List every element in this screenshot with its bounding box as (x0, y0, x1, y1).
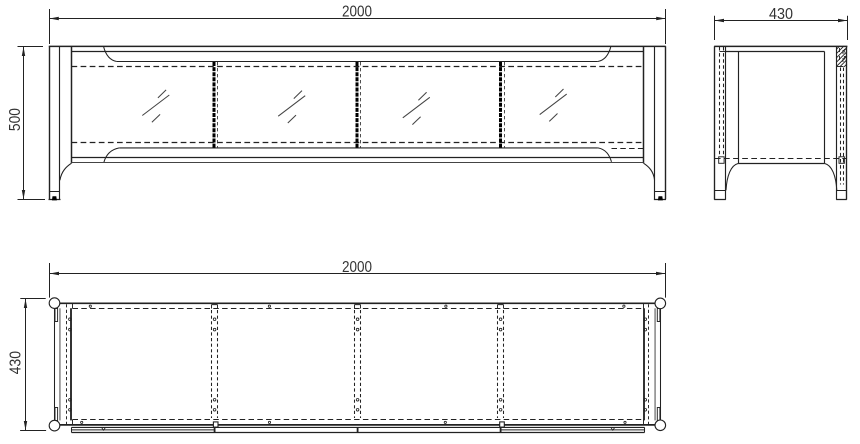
svg-text:500: 500 (7, 108, 24, 131)
svg-text:430: 430 (769, 6, 793, 23)
svg-text:2000: 2000 (342, 3, 372, 20)
svg-text:430: 430 (7, 351, 24, 375)
svg-text:2000: 2000 (342, 259, 372, 276)
